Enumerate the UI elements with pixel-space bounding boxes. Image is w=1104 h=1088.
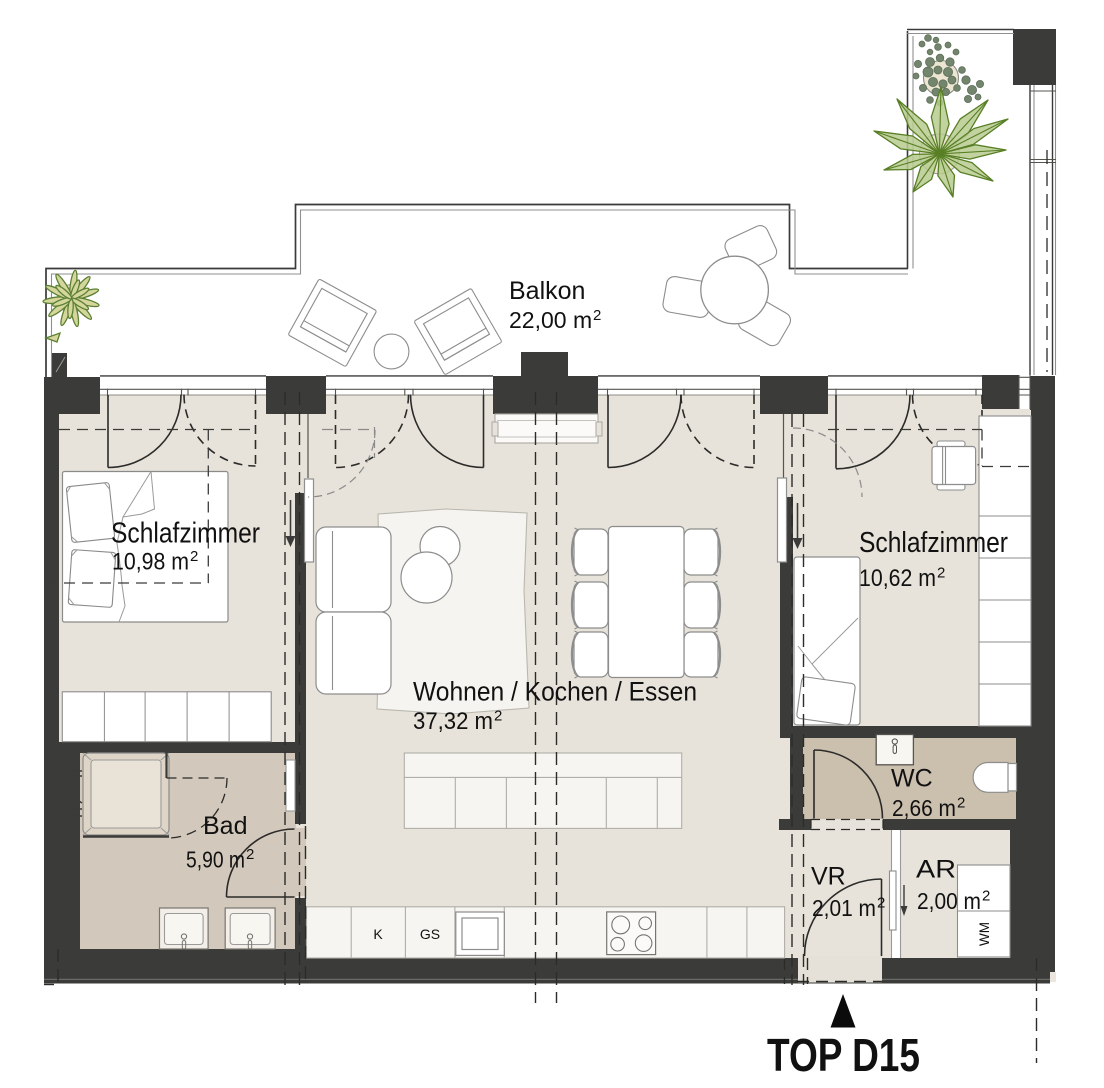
svg-text:2: 2: [937, 565, 945, 582]
svg-text:2,01 m: 2,01 m: [812, 895, 876, 921]
svg-text:2: 2: [957, 795, 965, 812]
svg-text:2: 2: [494, 708, 502, 725]
svg-text:2,66 m: 2,66 m: [892, 795, 956, 821]
svg-text:2: 2: [190, 548, 198, 565]
svg-text:Schlafzimmer: Schlafzimmer: [111, 518, 260, 550]
svg-text:AR: AR: [916, 856, 956, 884]
svg-text:TOP D15: TOP D15: [767, 1029, 920, 1081]
svg-text:5,90 m: 5,90 m: [186, 847, 245, 873]
svg-text:2: 2: [982, 888, 990, 905]
svg-text:10,62 m: 10,62 m: [859, 565, 936, 592]
svg-text:2: 2: [593, 307, 601, 324]
svg-text:Schlafzimmer: Schlafzimmer: [859, 527, 1008, 559]
svg-text:K: K: [373, 926, 383, 942]
svg-text:2: 2: [877, 895, 885, 912]
svg-text:37,32 m: 37,32 m: [413, 708, 493, 735]
svg-text:Balkon: Balkon: [509, 277, 585, 305]
svg-text:VR: VR: [811, 863, 846, 891]
svg-text:WM: WM: [977, 922, 992, 946]
svg-text:Wohnen / Kochen / Essen: Wohnen / Kochen / Essen: [413, 677, 697, 707]
svg-text:2,00 m: 2,00 m: [917, 888, 981, 914]
svg-text:2: 2: [246, 846, 254, 863]
svg-text:WC: WC: [891, 765, 933, 793]
svg-text:Bad: Bad: [203, 812, 247, 840]
svg-text:GS: GS: [420, 926, 440, 942]
svg-text:22,00 m: 22,00 m: [509, 307, 592, 333]
svg-text:10,98 m: 10,98 m: [112, 549, 189, 576]
